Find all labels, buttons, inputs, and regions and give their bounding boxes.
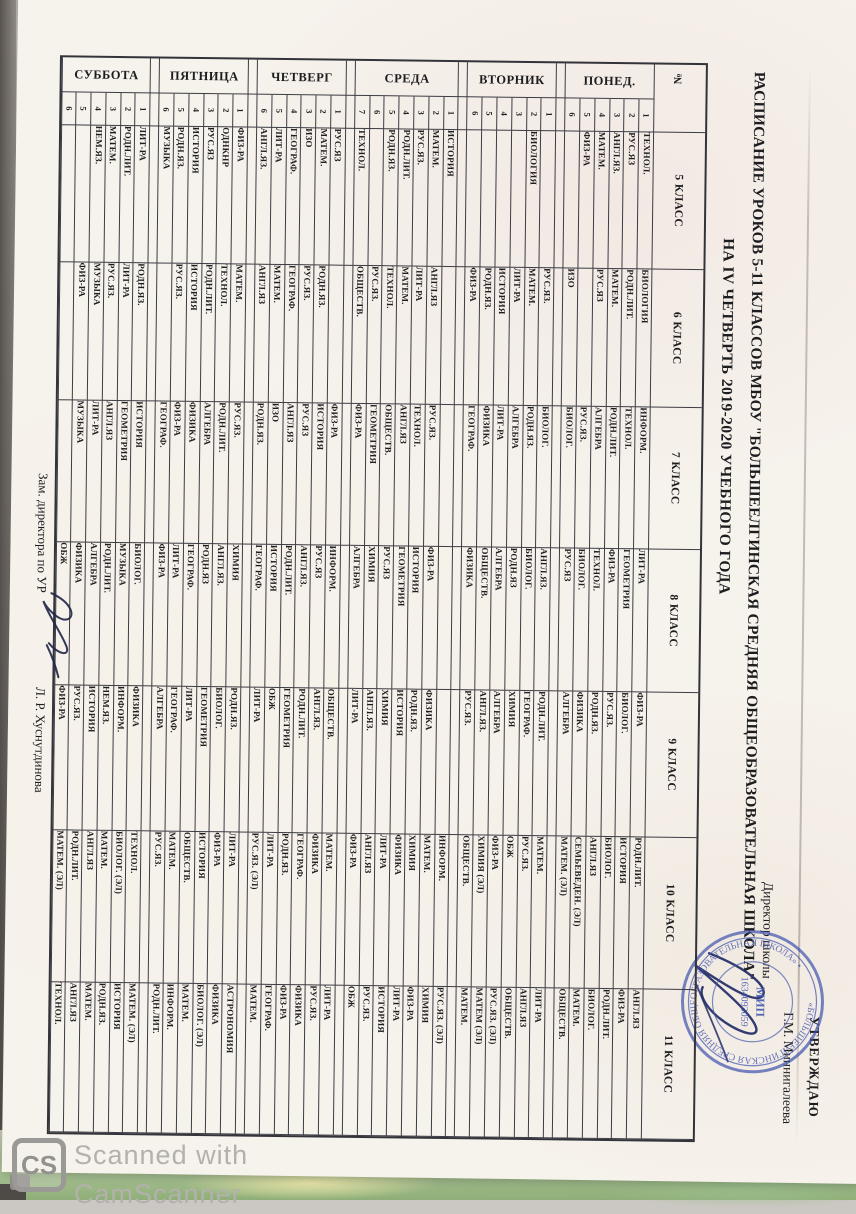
lesson-cell: ФИЗИКА bbox=[571, 692, 588, 837]
separator-cell bbox=[543, 988, 554, 1138]
lesson-cell: ХИМИЯ bbox=[362, 546, 379, 689]
lesson-cell: ОБЩЕСТВ. bbox=[351, 266, 367, 404]
lesson-cell: ФИЗ-РА bbox=[486, 836, 503, 988]
lesson-cell: БИОЛОГ. bbox=[128, 543, 145, 686]
lesson-cell: АЛГЕБРА bbox=[488, 691, 505, 836]
lesson-cell: ФИЗИКА bbox=[183, 402, 200, 544]
lesson-cell: МАТЕМ. bbox=[454, 987, 471, 1137]
lesson-cell: ФИЗ-РА bbox=[349, 404, 366, 546]
lesson-cell: ФИЗИКА bbox=[288, 985, 305, 1135]
lesson-cell: ЛИТ-РА bbox=[261, 833, 278, 985]
lesson-cell: ЛИТ-РА bbox=[528, 988, 545, 1138]
lesson-cell: ХИМИЯ bbox=[226, 544, 243, 687]
day-cell-ПОНЕД.: ПОНЕД. bbox=[565, 63, 654, 99]
lesson-cell: МАТЕМ. bbox=[567, 989, 584, 1139]
separator-cell bbox=[345, 96, 354, 129]
separator-cell bbox=[451, 547, 462, 690]
lesson-number: 5 bbox=[481, 97, 496, 130]
lesson-cell: РУС.ЯЗ. bbox=[170, 264, 186, 402]
lesson-cell bbox=[436, 547, 453, 690]
lesson-cell: ФИЗ-РА bbox=[421, 547, 438, 690]
lesson-cell: ИСТОРИЯ bbox=[264, 545, 281, 688]
lesson-number: 1 bbox=[541, 98, 556, 131]
lesson-cell: АНГЛ.ЯЗ bbox=[253, 265, 269, 403]
lesson-cell: АЛГЕБРА bbox=[150, 686, 167, 831]
lesson-cell: ГЕОМЕТРИЯ bbox=[194, 687, 211, 832]
separator-cell bbox=[458, 97, 467, 130]
camscanner-caption-line2: CamScanner bbox=[74, 1175, 248, 1214]
lesson-number: 5 bbox=[271, 95, 286, 128]
separator-cell bbox=[143, 543, 154, 686]
lesson-cell: РОДН.ЯЗ. bbox=[93, 983, 110, 1133]
lesson-cell: РОДН.ЯЗ. bbox=[224, 687, 241, 832]
lesson-cell: ЛИТ-РА bbox=[166, 544, 183, 687]
lesson-cell: ТЕХНОЛ. bbox=[124, 831, 141, 983]
lesson-cell: РОДН.ЛИТ. bbox=[199, 264, 215, 402]
school-stamp-icon: «БОЛЬШЕЕЛГИНСКАЯ СРЕДНЯЯ ОБЩЕОБРАЗОВАТЕЛ… bbox=[676, 925, 830, 1079]
lesson-cell: ТЕХНОЛ. bbox=[214, 264, 230, 402]
lesson-cell: НЕМ.ЯЗ. bbox=[89, 126, 105, 263]
lesson-cell: АЛГЕБРА bbox=[83, 543, 100, 686]
lesson-cell: ИЗО bbox=[299, 128, 315, 265]
lesson-cell: РОДН.ЛИТ. bbox=[532, 691, 549, 836]
separator-cell bbox=[556, 63, 565, 98]
lesson-number: 3 bbox=[609, 99, 624, 132]
lesson-cell: БИОЛОГ. (ЭЛ) bbox=[191, 984, 208, 1134]
class-header-6: 6 КЛАСС bbox=[650, 269, 704, 408]
schedule-table: №5 КЛАСС6 КЛАСС7 КЛАСС8 КЛАСС9 КЛАСС10 К… bbox=[46, 55, 708, 1142]
lesson-cell: РОДН.ЛИТ. bbox=[213, 402, 230, 544]
lesson-cell: РОДН.ЛИТ. bbox=[146, 983, 163, 1133]
lesson-cell: ГЕОГРАФ. bbox=[290, 833, 307, 985]
lesson-cell: МАТЕМ. bbox=[244, 985, 261, 1135]
lesson-cell: РУС.ЯЗ bbox=[329, 129, 345, 266]
deputy-signature bbox=[36, 583, 81, 684]
lesson-cell: БИОЛОГИЯ bbox=[524, 131, 540, 268]
lesson-cell: ГЕОГРАФ. bbox=[282, 265, 298, 403]
separator-cell bbox=[148, 126, 159, 263]
separator-cell bbox=[235, 984, 246, 1134]
separator-cell bbox=[547, 691, 558, 836]
lesson-cell: РУС.ЯЗ. bbox=[411, 130, 427, 267]
lesson-cell: ИСТОРИЯ bbox=[493, 268, 509, 406]
lesson-cell bbox=[367, 129, 383, 266]
lesson-cell: ЛИТ-РА bbox=[116, 263, 132, 401]
lesson-cell: ФИЗИКА bbox=[205, 984, 222, 1134]
separator-cell bbox=[545, 836, 556, 988]
lesson-cell: ЛИТ-РА bbox=[491, 406, 508, 548]
lesson-cell: БИОЛОГ. bbox=[535, 406, 552, 548]
lesson-cell: ТЕХНОЛ. bbox=[380, 266, 396, 404]
lesson-cell: МАТЕМ. bbox=[426, 130, 442, 267]
lesson-cell: РОДН.ЯЗ. bbox=[585, 692, 602, 837]
lesson-cell: РУС.ЯЗ bbox=[201, 127, 217, 264]
lesson-cell: АНГЛ.ЯЗ bbox=[63, 982, 80, 1132]
lesson-number: 4 bbox=[188, 94, 203, 127]
separator-cell bbox=[336, 689, 347, 834]
lesson-cell: РОДН.ЛИТ. bbox=[98, 543, 115, 686]
lesson-cell: РУС.ЯЗ. bbox=[356, 986, 373, 1136]
lesson-cell: ИНФОРМ. bbox=[111, 686, 128, 831]
lesson-cell: РУС.ЯЗ. bbox=[303, 985, 320, 1135]
lesson-cell: ИСТОРИЯ bbox=[186, 127, 202, 264]
lesson-cell: АЛГЕБРА bbox=[556, 691, 573, 836]
lesson-cell: РУС.ЯЗ bbox=[295, 403, 312, 545]
lesson-cell: АНГЛ.ЯЗ. bbox=[534, 548, 551, 691]
lesson-cell: ТЕХНОЛ. bbox=[48, 982, 65, 1132]
separator-cell bbox=[548, 548, 559, 691]
separator-cell bbox=[141, 686, 152, 831]
lesson-cell: РУС.ЯЗ. bbox=[423, 405, 440, 547]
lesson-number: 6 bbox=[61, 92, 76, 125]
lesson-cell: АЛГЕБРА bbox=[506, 406, 523, 548]
lesson-cell: АНГЛ.ЯЗ bbox=[393, 404, 410, 546]
lesson-cell: ФИЗИКА bbox=[388, 834, 405, 986]
lesson-cell: ИНФОРМ. bbox=[323, 546, 340, 689]
camscanner-logo-letters: CS bbox=[12, 1138, 66, 1192]
separator-cell bbox=[554, 131, 565, 268]
separator-cell bbox=[458, 62, 467, 97]
separator-cell bbox=[550, 406, 561, 548]
lesson-cell: РОДН.ЯЗ. bbox=[275, 833, 292, 985]
lesson-cell: ХИМИЯ bbox=[502, 691, 519, 836]
camscanner-logo-icon: CS bbox=[10, 1138, 60, 1190]
day-cell-ЧЕТВЕРГ: ЧЕТВЕРГ bbox=[257, 60, 346, 96]
scanned-document: РАСПИСАНИЕ УРОКОВ 5-11 КЛАССОВ МБОУ "БОЛ… bbox=[27, 55, 840, 1145]
lesson-cell: РУС.ЯЗ. bbox=[227, 402, 244, 544]
lesson-cell: ФИЗ-РА bbox=[207, 832, 224, 984]
separator-cell bbox=[343, 129, 354, 266]
lesson-cell: ИСТОРИЯ bbox=[441, 130, 457, 267]
day-cell-ПЯТНИЦА: ПЯТНИЦА bbox=[159, 58, 248, 94]
lesson-cell: ГЕОГРАФ. bbox=[165, 687, 182, 832]
lesson-cell: ФИЗ-РА bbox=[52, 685, 69, 830]
day-cell-СРЕДА: СРЕДА bbox=[354, 61, 458, 97]
separator-cell bbox=[452, 405, 463, 547]
lesson-cell: ФИЗ-РА bbox=[401, 987, 418, 1137]
class-header-10: 10 КЛАСС bbox=[643, 837, 697, 990]
lesson-cell bbox=[480, 130, 496, 267]
lesson-cell: ГЕОГРАФ. bbox=[249, 545, 266, 688]
lesson-cell: БИОЛОГ. bbox=[598, 837, 615, 989]
separator-cell bbox=[338, 546, 349, 689]
lesson-cell: МАТЕМ. bbox=[314, 128, 330, 265]
lesson-cell: РУС.ЯЗ. bbox=[365, 266, 381, 404]
lesson-number: 6 bbox=[369, 96, 384, 129]
lesson-cell: ГЕОГРАФ. bbox=[153, 401, 170, 543]
lesson-cell: АНГЛ.ЯЗ bbox=[281, 403, 298, 545]
lesson-cell: АНГЛ.ЯЗ bbox=[425, 267, 441, 405]
lesson-cell: МАТЕМ. bbox=[163, 832, 180, 984]
separator-cell bbox=[335, 834, 346, 986]
lesson-cell: РУС.ЯЗ bbox=[591, 269, 607, 407]
lesson-cell: РУС.ЯЗ. bbox=[102, 263, 118, 401]
lesson-cell: ГЕОГРАФ. bbox=[517, 691, 534, 836]
deputy-name: Л. Р. Хуснутдинова bbox=[31, 687, 48, 793]
lesson-cell: МУЗЫКА bbox=[157, 126, 173, 263]
lesson-cell: МАТЕМ. (ЭЛ) bbox=[554, 836, 571, 988]
lesson-cell: ЛИТ-РА bbox=[248, 688, 265, 833]
lesson-cell: МАТЕМ. bbox=[229, 264, 245, 402]
stamp-ring-text: «БОЛЬШЕЕЛГИНСКАЯ СРЕДНЯЯ ОБЩЕОБРАЗОВАТЕЛ… bbox=[689, 938, 817, 1066]
lesson-cell: РОДН.ЛИТ. bbox=[596, 989, 613, 1139]
separator-cell bbox=[144, 401, 155, 543]
lesson-cell: ИСТОРИЯ bbox=[192, 832, 209, 984]
lesson-cell: РОДН.ЛИТ. bbox=[279, 545, 296, 688]
lesson-number: 1 bbox=[638, 99, 653, 132]
lesson-cell: ЛИТ-РА bbox=[179, 687, 196, 832]
lesson-cell bbox=[155, 263, 171, 401]
lesson-cell: РУС.ЯЗ. bbox=[458, 690, 475, 835]
lesson-cell: РУС.ЯЗ. bbox=[515, 836, 532, 988]
lesson-cell: ХИМИЯ bbox=[403, 835, 420, 987]
separator-cell bbox=[149, 93, 158, 126]
lesson-cell: РОДН.ЛИТ. bbox=[604, 407, 621, 549]
lesson-cell: ЛИТ-РА bbox=[508, 268, 524, 406]
lesson-cell: ИСТОРИЯ bbox=[371, 986, 388, 1136]
lesson-cell: ГЕОМЕТРИЯ bbox=[277, 688, 294, 833]
separator-cell bbox=[240, 545, 251, 688]
lesson-cell: ФИЗ-РА bbox=[577, 132, 593, 269]
lesson-cell: ГЕОМЕТРИЯ bbox=[364, 404, 381, 546]
lesson-cell: РОДН.ЛИТ. bbox=[292, 688, 309, 833]
lesson-cell: РОДН.ЛИТ. bbox=[65, 830, 82, 982]
lesson-number: 3 bbox=[301, 95, 316, 128]
separator-cell bbox=[340, 404, 351, 546]
lesson-cell: ФИЗ-РА bbox=[611, 989, 628, 1139]
lesson-cell: ФИЗИКА bbox=[476, 405, 493, 547]
lesson-cell: ХИМИЯ (ЭЛ) bbox=[471, 835, 488, 987]
lesson-cell: ОБЖ bbox=[262, 688, 279, 833]
lesson-cell bbox=[539, 131, 555, 268]
lesson-cell bbox=[494, 131, 510, 268]
lesson-cell: АНГЛ.ЯЗ. bbox=[360, 689, 377, 834]
lesson-cell: ХИМИЯ bbox=[416, 987, 433, 1137]
separator-cell bbox=[244, 265, 255, 403]
lesson-cell: РУС.ЯЗ bbox=[309, 545, 326, 688]
lesson-number: 2 bbox=[624, 99, 639, 132]
lesson-cell: ФИЗ-РА bbox=[152, 543, 169, 686]
lesson-cell: ФИЗ-РА bbox=[72, 262, 88, 400]
deputy-label: Зам. директора по УР bbox=[33, 473, 50, 593]
lesson-cell: ИСТОРИЯ bbox=[185, 264, 201, 402]
lesson-cell: ОДНКНР bbox=[216, 127, 232, 264]
separator-cell bbox=[139, 831, 150, 983]
separator-cell bbox=[248, 60, 257, 95]
lesson-cell: МАТЕМ. bbox=[78, 983, 95, 1133]
camscanner-caption: Scanned with CamScanner bbox=[74, 1136, 248, 1214]
lesson-cell: РОДН.ЯЗ. bbox=[172, 127, 188, 264]
lesson-cell: РУС.ЯЗ. bbox=[600, 692, 617, 837]
lesson-cell: РОДН.ЯЗ. bbox=[478, 267, 494, 405]
lesson-number: 5 bbox=[75, 92, 90, 125]
lesson-cell bbox=[576, 269, 592, 407]
lesson-cell: ЛИТ-РА bbox=[85, 401, 102, 543]
lesson-cell: РОДН.ЛИТ. bbox=[620, 269, 636, 407]
class-header-11: 11 КЛАСС bbox=[641, 989, 695, 1140]
document-title-line2: НА IV ЧЕТВЕРТЬ 2019-2020 УЧЕБНОГО ГОДА bbox=[712, 71, 738, 761]
lesson-cell: МАТЕМ. bbox=[605, 269, 621, 407]
separator-cell bbox=[555, 98, 564, 131]
lesson-cell: МАТЕМ. bbox=[592, 132, 608, 269]
lesson-cell: БИОЛОГ. bbox=[559, 406, 576, 548]
lesson-cell: АЛГЕБРА bbox=[347, 546, 364, 689]
separator-cell bbox=[242, 403, 253, 545]
lesson-cell: АНГЛ.ЯЗ. bbox=[607, 132, 623, 269]
lesson-cell: АЛГЕБРА bbox=[589, 407, 606, 549]
separator-cell bbox=[342, 266, 353, 404]
lesson-cell: ЛИТ-РА bbox=[386, 986, 403, 1136]
lesson-cell: ГЕОГРАФ. bbox=[259, 985, 276, 1135]
lesson-number: 3 bbox=[511, 98, 526, 131]
lesson-cell: АНГЛ.ЯЗ. bbox=[307, 688, 324, 833]
lesson-cell: АНГЛ.ЯЗ. bbox=[211, 544, 228, 687]
lesson-cell: ЛИТ-РА bbox=[373, 834, 390, 986]
lesson-cell bbox=[56, 400, 73, 542]
separator-cell bbox=[247, 95, 256, 128]
document-title-line1: РАСПИСАНИЕ УРОКОВ 5-11 КЛАССОВ МБОУ "БОЛ… bbox=[741, 72, 767, 762]
lesson-cell: ГЕОГРАФ. bbox=[461, 405, 478, 547]
separator-cell bbox=[456, 130, 467, 267]
lesson-cell: РУС.ЯЗ. bbox=[297, 265, 313, 403]
separator-cell bbox=[137, 983, 148, 1133]
separator-cell bbox=[146, 263, 157, 401]
lesson-cell: ИНФОРМ. bbox=[432, 835, 449, 987]
lesson-cell: ФИЗИКА bbox=[419, 690, 436, 835]
lesson-number: 5 bbox=[384, 96, 399, 129]
lesson-number: 3 bbox=[413, 97, 428, 130]
lesson-cell: ТЕХНОЛ. bbox=[587, 549, 604, 692]
lesson-cell: МАТЕМ. (ЭЛ) bbox=[50, 830, 67, 982]
lesson-cell: РУС.ЯЗ bbox=[622, 132, 638, 269]
lesson-cell bbox=[439, 267, 455, 405]
lesson-number: 4 bbox=[286, 95, 301, 128]
lesson-cell: ОБЖ bbox=[500, 836, 517, 988]
lesson-cell: ЛИТ-РА bbox=[133, 126, 149, 263]
lesson-cell: ИСТОРИЯ bbox=[108, 983, 125, 1133]
separator-cell bbox=[445, 987, 456, 1137]
lesson-cell: МАТЕМ. bbox=[522, 268, 538, 406]
lesson-cell: МУЗЫКА bbox=[87, 263, 103, 401]
lesson-cell: ГЕОМЕТРИЯ bbox=[617, 549, 634, 692]
lesson-cell: ИЗО bbox=[561, 268, 577, 406]
lesson-cell: РОДН.ЛИТ. bbox=[118, 126, 134, 263]
class-header-5: 5 КЛАСС bbox=[651, 132, 705, 270]
lesson-cell: ИСТОРИЯ bbox=[406, 547, 423, 690]
lesson-number: 6 bbox=[564, 98, 579, 131]
lesson-cell: ИЗО bbox=[266, 403, 283, 545]
stamp-center-line2: 1634093059 bbox=[738, 977, 750, 1027]
lesson-cell: МАТЕМ. bbox=[95, 831, 112, 983]
lesson-cell: ГЕОГРАФ. bbox=[284, 128, 300, 265]
lesson-cell: БИОЛОГИЯ bbox=[635, 269, 651, 407]
lesson-cell: ОБЖ bbox=[342, 986, 359, 1136]
lesson-cell: РОДН.ЯЗ. bbox=[312, 265, 328, 403]
lesson-cell: БИОЛОГ. bbox=[209, 687, 226, 832]
lesson-number: 6 bbox=[158, 93, 173, 126]
lesson-cell: РУС.ЯЗ. bbox=[537, 268, 553, 406]
lesson-cell: ТЕХНОЛ. bbox=[408, 405, 425, 547]
lesson-cell: ЛИТ-РА bbox=[631, 549, 648, 692]
lesson-number: 7 bbox=[354, 96, 369, 129]
class-header-8: 8 КЛАСС bbox=[646, 549, 700, 693]
scanned-page: { "scan": { "logo_letters": "CS", "foote… bbox=[0, 0, 856, 1200]
lesson-cell: ТЕХНОЛ. bbox=[618, 407, 635, 549]
lesson-number: 1 bbox=[443, 97, 458, 130]
lesson-cell: СЕМЬЕВЕДЕН. (ЭЛ) bbox=[569, 837, 586, 989]
lesson-cell: РОДН.ЯЗ. bbox=[521, 406, 538, 548]
lesson-cell: ХИМИЯ bbox=[375, 689, 392, 834]
separator-cell bbox=[237, 832, 248, 984]
lesson-cell: РУС.ЯЗ. (ЭЛ) bbox=[484, 988, 501, 1138]
lesson-number: 5 bbox=[579, 99, 594, 132]
lesson-cell: МАТЕМ. bbox=[417, 835, 434, 987]
lesson-cell: ФИЗ-РА bbox=[168, 402, 185, 544]
corner-number-header: № bbox=[653, 65, 706, 134]
lesson-cell: ИСТОРИЯ bbox=[310, 403, 327, 545]
lesson-cell: ЛИТ-РА bbox=[222, 832, 239, 984]
separator-cell bbox=[239, 687, 250, 832]
lesson-cell: ОБЩЕСТВ. bbox=[552, 988, 569, 1138]
lesson-cell: ОБЩЕСТВ. bbox=[456, 835, 473, 987]
lesson-cell: ЛИТ-РА bbox=[318, 985, 335, 1135]
lesson-cell: РОДН.ЛИТ. bbox=[397, 129, 413, 266]
lesson-cell: ЛИТ-РА bbox=[269, 128, 285, 265]
lesson-cell: ТЕХНОЛ. bbox=[352, 129, 368, 266]
lesson-number: 3 bbox=[105, 93, 120, 126]
separator-cell bbox=[150, 58, 159, 93]
separator-cell bbox=[449, 690, 460, 835]
lesson-cell: ФИЗИКА bbox=[305, 833, 322, 985]
lesson-cell: МАТЕМ. bbox=[176, 984, 193, 1134]
lesson-cell: МАТЕМ. (ЭЛ) bbox=[122, 983, 139, 1133]
lesson-number: 2 bbox=[218, 94, 233, 127]
lesson-cell: АНГЛ.ЯЗ. bbox=[255, 128, 271, 265]
stamp-center-line1: МИП bbox=[753, 987, 767, 1018]
lesson-cell: ГЕОГРАФ. bbox=[181, 544, 198, 687]
lesson-cell: ИСТОРИЯ bbox=[130, 401, 147, 543]
class-header-7: 7 КЛАСС bbox=[648, 407, 702, 550]
lesson-cell: ТЕХНОЛ. bbox=[637, 132, 653, 269]
separator-cell bbox=[333, 986, 344, 1136]
lesson-cell: ФИЗ-РА bbox=[602, 549, 619, 692]
day-cell-ВТОРНИК: ВТОРНИК bbox=[467, 62, 556, 98]
lesson-cell: МУЗЫКА bbox=[70, 400, 87, 542]
lesson-cell: АНГЛ.ЯЗ bbox=[358, 834, 375, 986]
lesson-cell: РУС.ЯЗ. bbox=[574, 407, 591, 549]
lesson-number: 4 bbox=[594, 99, 609, 132]
lesson-cell: РОДН.ЯЗ. bbox=[131, 263, 147, 401]
camscanner-caption-line1: Scanned with bbox=[74, 1136, 248, 1175]
lesson-cell bbox=[59, 125, 75, 262]
lesson-cell: ГЕОМЕТРИЯ bbox=[115, 401, 132, 543]
lesson-cell: ИСТОРИЯ bbox=[390, 689, 407, 834]
lesson-cell: АЛГЕБРА bbox=[198, 402, 215, 544]
lesson-cell: БИОЛОГ. bbox=[615, 692, 632, 837]
lesson-cell: МАТЕМ. bbox=[395, 266, 411, 404]
lesson-number: 4 bbox=[398, 96, 413, 129]
lesson-cell: АНГЛ.ЯЗ bbox=[583, 837, 600, 989]
lesson-cell: ГЕОМЕТРИЯ bbox=[392, 546, 409, 689]
lesson-cell: НЕМ.ЯЗ. bbox=[96, 686, 113, 831]
lesson-cell: МАТЕМ. bbox=[320, 833, 337, 985]
lesson-number: 2 bbox=[428, 97, 443, 130]
lesson-cell: БИОЛОГ. bbox=[582, 989, 599, 1139]
lesson-number: 2 bbox=[120, 93, 135, 126]
lesson-cell: ОБЩЕСТВ. bbox=[178, 832, 195, 984]
lesson-cell: ФИЗ-РА bbox=[325, 404, 342, 546]
lesson-number: 5 bbox=[173, 94, 188, 127]
